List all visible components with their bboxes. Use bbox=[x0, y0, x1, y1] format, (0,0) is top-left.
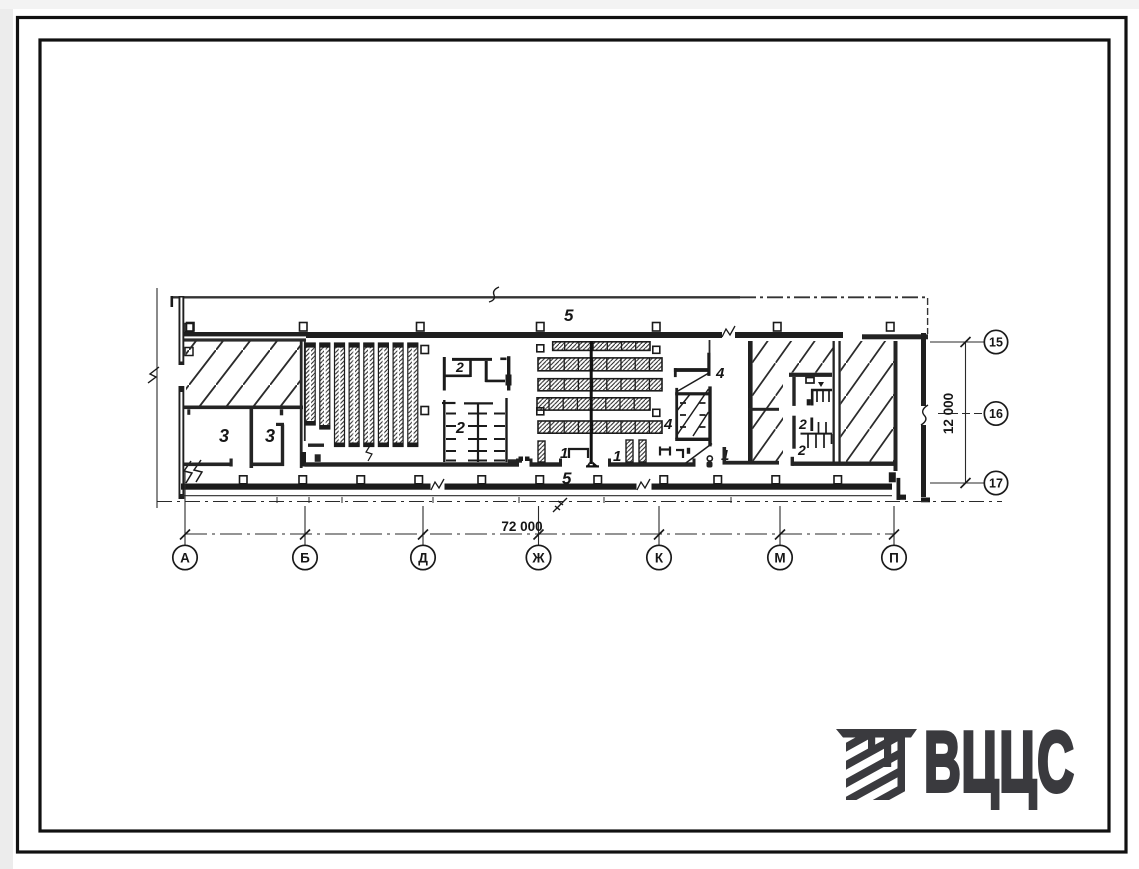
svg-text:5: 5 bbox=[564, 306, 574, 325]
svg-text:П: П bbox=[889, 551, 899, 566]
svg-text:М: М bbox=[774, 551, 785, 566]
svg-text:К: К bbox=[655, 551, 664, 566]
svg-text:16: 16 bbox=[989, 407, 1003, 421]
svg-text:12 000: 12 000 bbox=[941, 393, 956, 434]
svg-text:4: 4 bbox=[715, 365, 725, 382]
svg-text:2: 2 bbox=[798, 416, 807, 432]
svg-text:Б: Б bbox=[300, 551, 310, 566]
svg-text:3: 3 bbox=[265, 426, 275, 446]
svg-text:17: 17 bbox=[989, 477, 1003, 491]
svg-text:15: 15 bbox=[989, 336, 1003, 350]
svg-text:2: 2 bbox=[797, 442, 806, 458]
svg-text:2: 2 bbox=[455, 420, 465, 437]
svg-text:Ж: Ж bbox=[531, 551, 545, 566]
svg-text:4: 4 bbox=[663, 416, 673, 433]
svg-text:А: А bbox=[180, 551, 190, 566]
svg-text:3: 3 bbox=[219, 426, 229, 446]
svg-text:2: 2 bbox=[455, 359, 464, 375]
svg-text:72 000: 72 000 bbox=[501, 519, 542, 534]
svg-text:ВЦЦС: ВЦЦС bbox=[924, 715, 1075, 810]
svg-text:Д: Д bbox=[418, 551, 428, 566]
